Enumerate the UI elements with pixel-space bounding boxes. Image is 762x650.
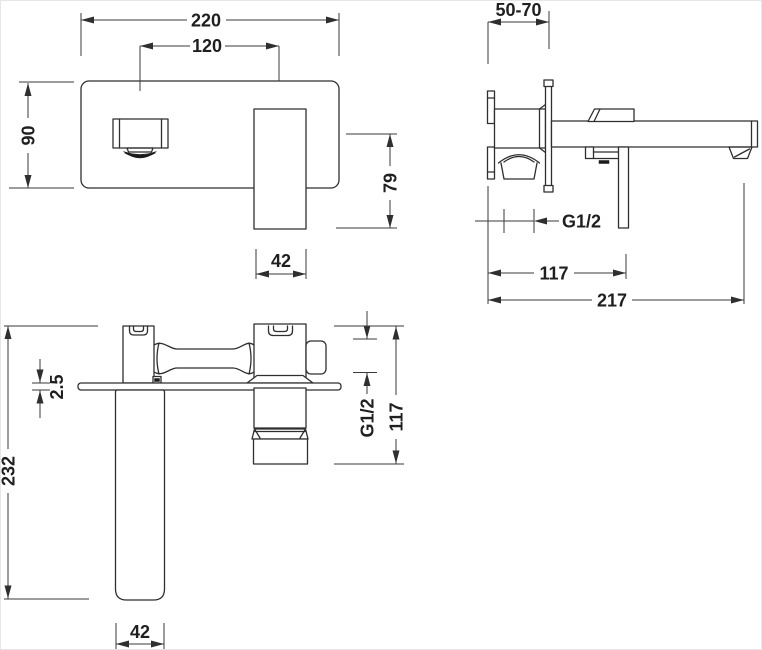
dim-label-side-thread: G1/2 (562, 212, 601, 232)
spout-front (113, 119, 168, 148)
dim-plan-thread: G1/2 (353, 311, 378, 438)
inlet-stub (501, 163, 537, 179)
dim-side-thread: G1/2 (475, 209, 601, 233)
cartridge-block (254, 324, 306, 381)
dim-drop-to-handle-end: 79 (336, 134, 401, 228)
spout-outlet-line (735, 149, 750, 157)
dim-label-front-handle-width: 42 (271, 251, 291, 271)
dim-label-body-reach: 117 (387, 402, 407, 431)
dim-label-front-height: 90 (19, 125, 39, 145)
dim-body-reach: 117 (334, 326, 407, 464)
body-taper-line (540, 148, 546, 153)
dim-total-length: 232 (1, 326, 98, 599)
plate-cap-top (544, 80, 553, 87)
dim-front-height: 90 (9, 82, 74, 188)
lever-hinge-tab (586, 147, 594, 159)
dim-label-spout-to-handle: 120 (192, 36, 222, 56)
lever-bar-side (619, 147, 629, 228)
plan-view: 232 2.5 G1/2 (1, 311, 407, 649)
technical-drawing-page: 220 120 90 (0, 0, 762, 650)
front-view: 220 120 90 (9, 11, 401, 280)
body-top-contour (154, 343, 254, 349)
dim-label-total-length: 232 (1, 456, 19, 486)
body-bottom-contour (154, 368, 254, 374)
dim-label-plate-thickness: 2.5 (47, 374, 67, 399)
body-taper-line (540, 105, 546, 110)
wall-plate-side (546, 86, 552, 186)
body-waist-right (249, 343, 251, 374)
side-view: 50-70 G1/2 117 217 (475, 1, 758, 311)
dim-label-drop: 79 (381, 173, 401, 193)
dim-label-front-width: 220 (191, 11, 221, 31)
mounting-screw-bottom (488, 147, 495, 179)
spout-outlet (729, 147, 752, 159)
dim-wall-depth-range: 50-70 (488, 1, 549, 64)
dim-front-handle-width: 42 (256, 249, 306, 279)
escutcheon-flare (247, 376, 313, 384)
spout-side (552, 121, 758, 147)
handle-body-plan (254, 388, 306, 428)
body-waist-left (157, 343, 159, 374)
in-wall-body-side (495, 109, 546, 148)
dim-label-plan-thread: G1/2 (358, 398, 378, 437)
dim-label-handle-reach: 117 (539, 264, 568, 284)
handle-lever-plan (254, 439, 308, 464)
dim-plan-spout-width: 42 (116, 622, 164, 649)
dim-label-plan-spout-width: 42 (130, 622, 150, 642)
spout-plan (116, 390, 165, 600)
dim-label-spout-reach: 217 (597, 291, 627, 311)
dim-plate-thickness: 2.5 (32, 359, 67, 418)
dim-label-wall-depth: 50-70 (495, 1, 541, 20)
spout-foot-pin (155, 379, 160, 382)
lever-pin (599, 161, 609, 164)
plate-cap-bottom (544, 186, 553, 193)
dim-spout-reach: 217 (488, 183, 744, 311)
dim-handle-reach: 117 (488, 254, 626, 284)
mounting-screw-top (488, 91, 495, 124)
technical-drawing: 220 120 90 (1, 1, 762, 650)
handle-front (254, 109, 306, 229)
cartridge-cover (306, 341, 326, 374)
